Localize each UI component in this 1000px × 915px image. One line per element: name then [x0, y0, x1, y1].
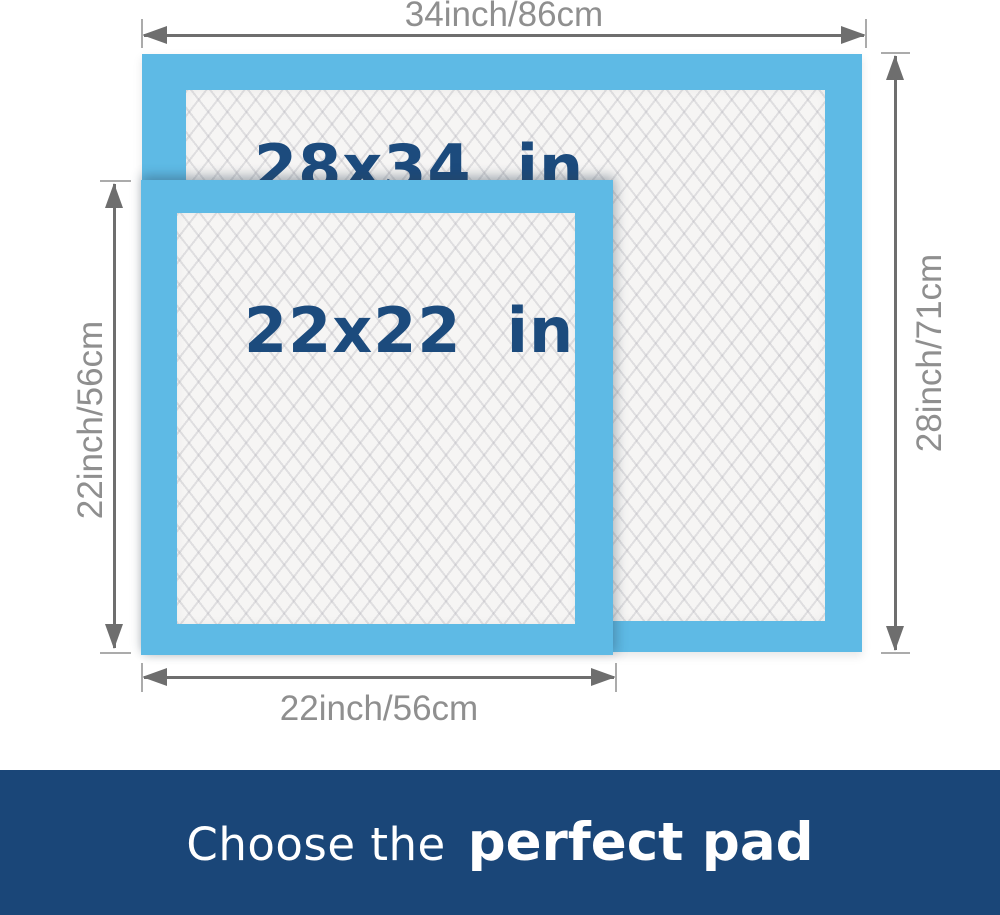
- extension-tick: [100, 652, 131, 654]
- extension-tick: [141, 663, 143, 692]
- dimension-line: [894, 56, 897, 650]
- banner: Choose the perfect pad: [0, 770, 1000, 915]
- extension-tick: [615, 663, 617, 692]
- dimension-line: [144, 676, 614, 679]
- extension-tick: [881, 52, 910, 54]
- extension-tick: [865, 19, 867, 48]
- arrowhead-up-icon: [105, 183, 123, 208]
- pad-size-infographic: 28x34 in 22x22 in 34inch/86cm 28inch/71c…: [0, 0, 1000, 915]
- dimension-line: [144, 34, 864, 37]
- arrowhead-left-icon: [142, 668, 167, 686]
- extension-tick: [881, 652, 910, 654]
- arrowhead-left-icon: [142, 26, 167, 44]
- pad-22x22-quilted-surface: 22x22 in: [177, 213, 575, 624]
- pad-22x22-size-label: 22x22 in: [244, 297, 574, 365]
- arrowhead-right-icon: [591, 668, 616, 686]
- dimension-small-pad-width-label: 22inch/56cm: [142, 690, 616, 728]
- arrowhead-up-icon: [886, 55, 904, 80]
- arrowhead-right-icon: [841, 26, 866, 44]
- arrowhead-down-icon: [105, 624, 123, 649]
- dimension-small-pad-width: 22inch/56cm: [142, 662, 616, 734]
- dimension-large-pad-width: 34inch/86cm: [142, 0, 866, 52]
- dimension-large-pad-height-label: 28inch/71cm: [911, 203, 949, 503]
- dimension-large-pad-height: 28inch/71cm: [880, 52, 940, 654]
- dimension-line: [113, 184, 116, 648]
- extension-tick: [141, 19, 143, 48]
- banner-highlight-text: perfect pad: [468, 812, 814, 873]
- arrowhead-down-icon: [886, 626, 904, 651]
- pad-22x22: 22x22 in: [141, 180, 613, 655]
- banner-prefix-text: Choose the: [186, 818, 445, 871]
- dimension-large-pad-width-label: 34inch/86cm: [142, 0, 866, 34]
- banner-text-line: Choose the perfect pad: [186, 812, 813, 873]
- dimension-small-pad-height-label: 22inch/56cm: [72, 270, 110, 570]
- dimension-small-pad-height: 22inch/56cm: [86, 178, 144, 654]
- extension-tick: [100, 180, 131, 182]
